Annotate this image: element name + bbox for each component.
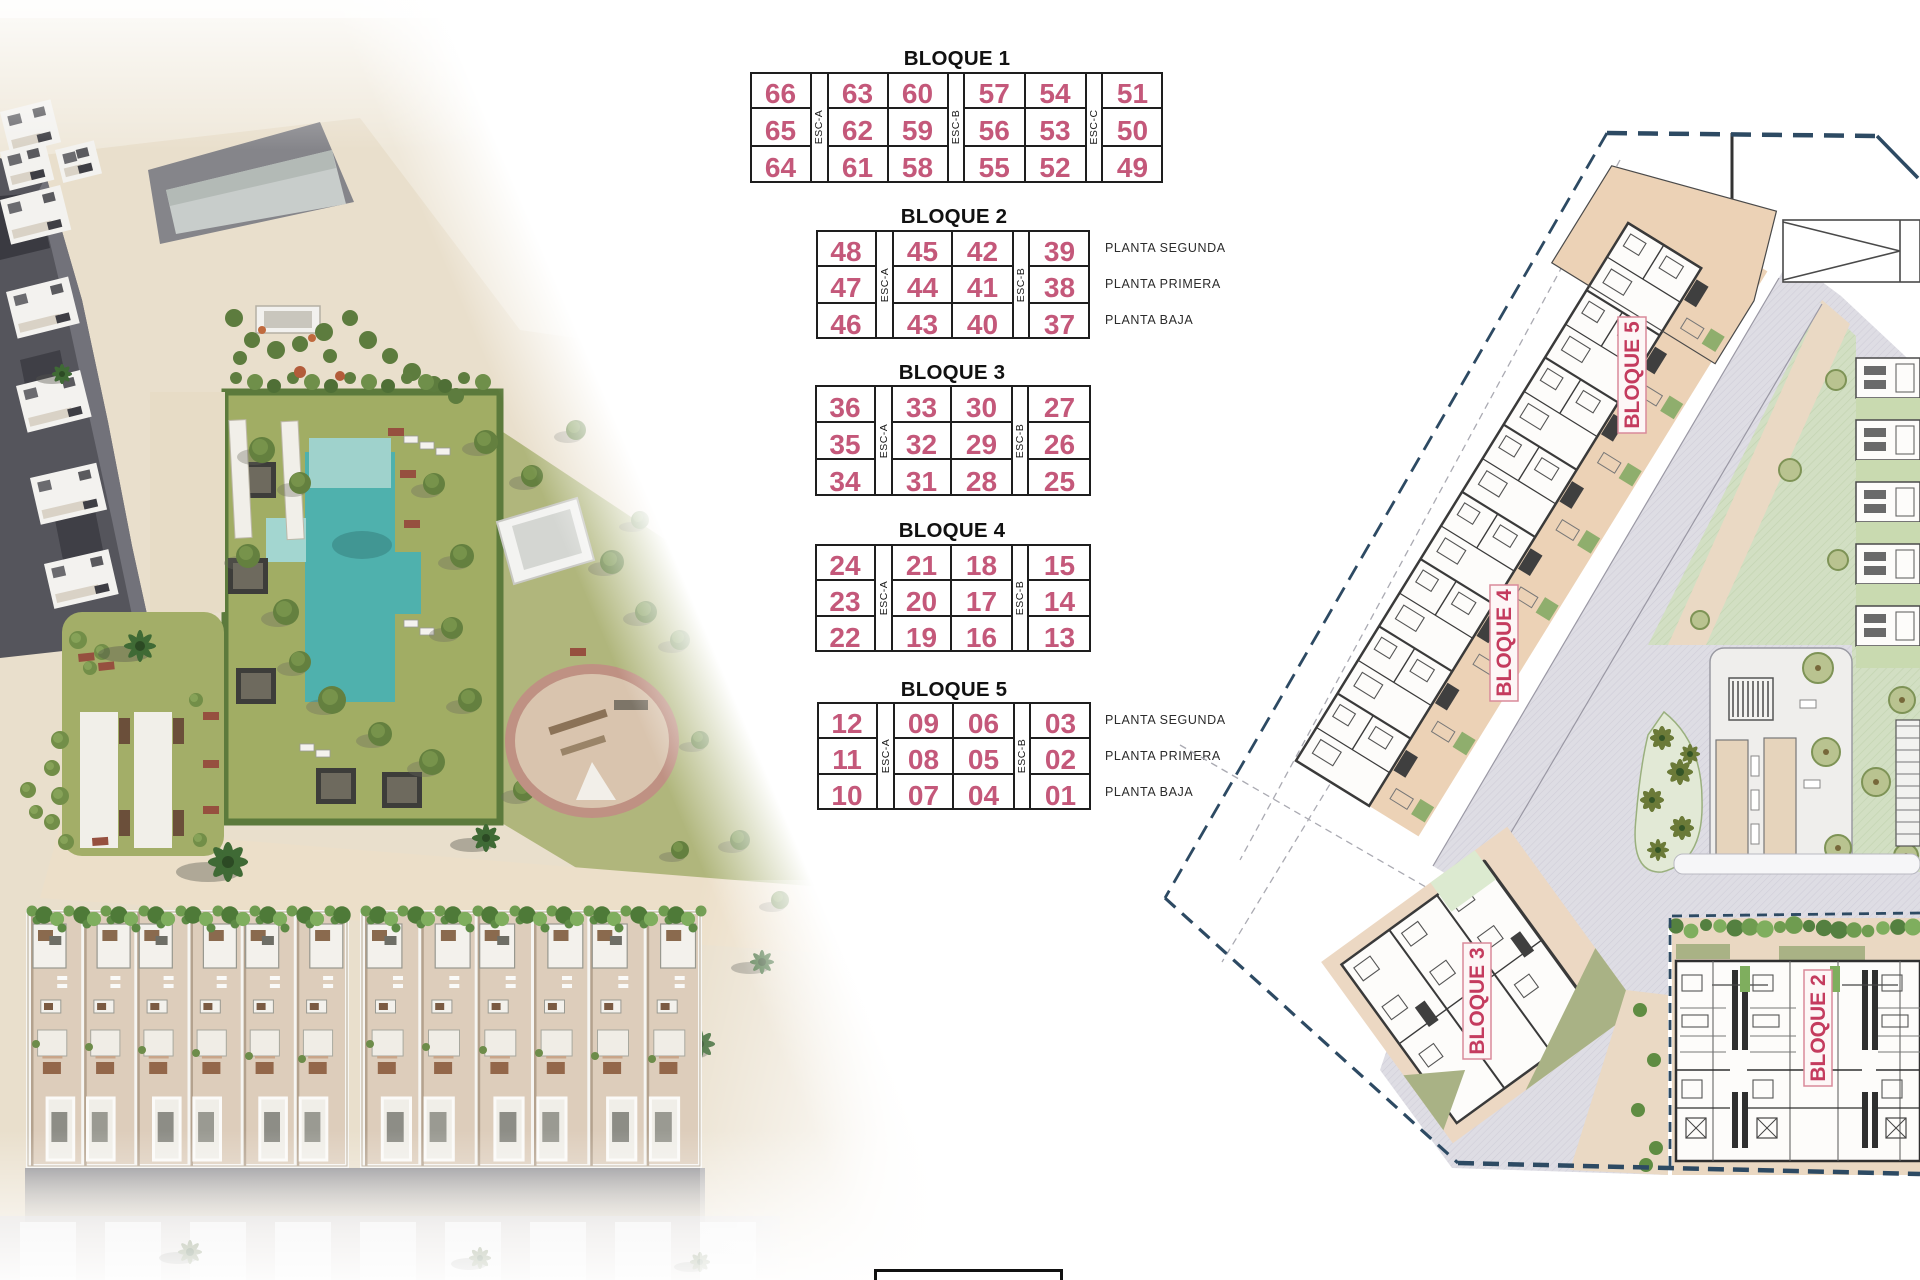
svg-text:BLOQUE 5: BLOQUE 5 bbox=[1621, 321, 1644, 429]
svg-text:BLOQUE 4: BLOQUE 4 bbox=[1493, 589, 1516, 697]
svg-text:BLOQUE 2: BLOQUE 2 bbox=[1807, 974, 1830, 1081]
svg-text:BLOQUE 3: BLOQUE 3 bbox=[1466, 947, 1489, 1054]
